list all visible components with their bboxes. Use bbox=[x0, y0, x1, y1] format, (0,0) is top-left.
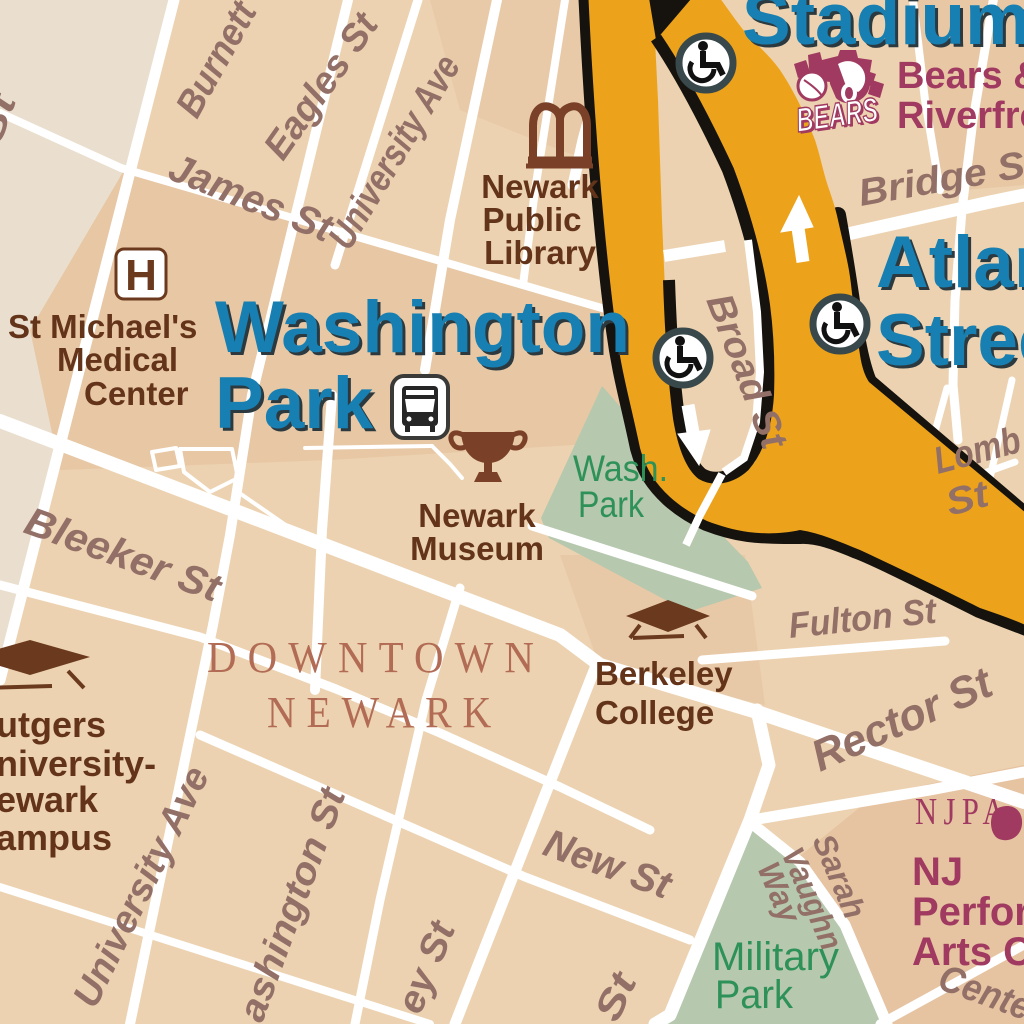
svg-text:Riverfront: Riverfront bbox=[897, 95, 1024, 137]
svg-text:Museum: Museum bbox=[410, 530, 544, 567]
svg-text:Rutgers: Rutgers bbox=[0, 704, 106, 745]
svg-text:Medical: Medical bbox=[57, 341, 178, 378]
svg-text:Newark: Newark bbox=[0, 779, 99, 820]
svg-text:Street: Street bbox=[876, 300, 1024, 381]
svg-text:Performing: Performing bbox=[912, 890, 1024, 934]
svg-text:Newark: Newark bbox=[481, 168, 599, 205]
svg-text:Library: Library bbox=[484, 234, 597, 271]
svg-text:Park: Park bbox=[215, 363, 374, 444]
svg-text:H: H bbox=[125, 251, 157, 300]
svg-text:St Michael's: St Michael's bbox=[8, 308, 197, 345]
svg-text:Berkeley: Berkeley bbox=[595, 655, 733, 692]
svg-text:University-: University- bbox=[0, 743, 156, 784]
svg-text:Atlant: Atlant bbox=[876, 222, 1024, 303]
svg-text:Park: Park bbox=[715, 973, 794, 1017]
svg-text:Arts Cent: Arts Cent bbox=[912, 930, 1024, 974]
svg-text:Stadium: Stadium bbox=[742, 0, 1024, 60]
svg-text:Campus: Campus bbox=[0, 817, 112, 858]
svg-text:Center: Center bbox=[84, 375, 189, 412]
svg-text:Park: Park bbox=[578, 484, 644, 525]
svg-text:Newark: Newark bbox=[418, 497, 536, 534]
svg-text:Wash.: Wash. bbox=[573, 448, 668, 489]
svg-text:NEWARK: NEWARK bbox=[267, 688, 502, 737]
svg-text:Public: Public bbox=[482, 201, 581, 238]
svg-text:Bears &: Bears & bbox=[897, 55, 1024, 97]
svg-text:DOWNTOWN: DOWNTOWN bbox=[207, 633, 545, 682]
svg-text:NJ: NJ bbox=[912, 850, 963, 894]
svg-text:College: College bbox=[595, 694, 714, 731]
svg-text:Washington: Washington bbox=[215, 287, 630, 368]
